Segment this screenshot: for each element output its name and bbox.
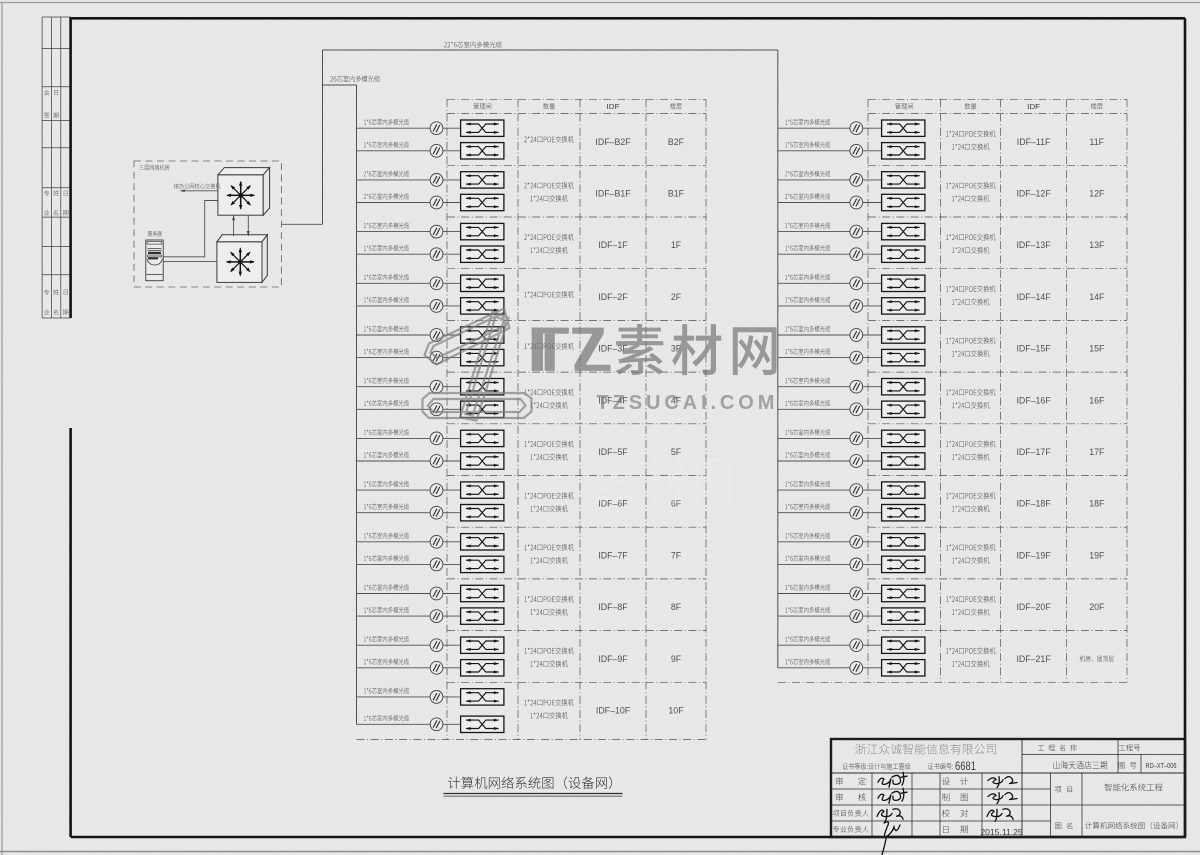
svg-text:IDF–8F: IDF–8F	[598, 602, 628, 612]
svg-text:IDF–10F: IDF–10F	[596, 706, 631, 716]
svg-text:2015.11.25: 2015.11.25	[980, 827, 1023, 837]
svg-text:IDF–21F: IDF–21F	[1016, 654, 1051, 664]
svg-text:14F: 14F	[1089, 292, 1105, 302]
svg-text:IDF–7F: IDF–7F	[598, 550, 628, 560]
svg-text:IDF: IDF	[607, 102, 620, 111]
svg-text:12F: 12F	[1089, 189, 1105, 199]
svg-text:IDF–B1F: IDF–B1F	[595, 189, 631, 199]
svg-text:2F: 2F	[671, 292, 682, 302]
svg-text:IDF–13F: IDF–13F	[1016, 240, 1051, 250]
svg-text:13F: 13F	[1089, 240, 1105, 250]
svg-text:6681: 6681	[955, 759, 976, 773]
svg-text:IDF–15F: IDF–15F	[1016, 344, 1051, 354]
svg-text:IDF–9F: IDF–9F	[598, 654, 628, 664]
svg-text:RD–XT–006: RD–XT–006	[1146, 763, 1177, 770]
svg-text:1F: 1F	[671, 240, 682, 250]
svg-text:IDF–12F: IDF–12F	[1016, 189, 1051, 199]
svg-text:11F: 11F	[1090, 137, 1105, 147]
svg-text:IDF–18F: IDF–18F	[1016, 499, 1051, 509]
svg-text:17F: 17F	[1089, 447, 1105, 457]
svg-text:IDF–19F: IDF–19F	[1016, 550, 1051, 560]
svg-text:9F: 9F	[671, 654, 682, 664]
svg-text:10F: 10F	[668, 706, 684, 716]
svg-text:IDF–14F: IDF–14F	[1016, 292, 1051, 302]
svg-text:IDF–20F: IDF–20F	[1016, 602, 1051, 612]
svg-text:IDF: IDF	[1027, 102, 1040, 111]
svg-text:18F: 18F	[1089, 499, 1105, 509]
svg-text:B1F: B1F	[668, 189, 685, 199]
svg-text:IDF–B2F: IDF–B2F	[595, 137, 631, 147]
svg-text:IDF–16F: IDF–16F	[1016, 395, 1051, 405]
svg-text:7F: 7F	[671, 550, 682, 560]
svg-text:IDF–17F: IDF–17F	[1016, 447, 1051, 457]
svg-text:15F: 15F	[1089, 344, 1105, 354]
svg-text:TZSUCAI.COM: TZSUCAI.COM	[597, 392, 779, 414]
svg-text:19F: 19F	[1089, 550, 1105, 560]
svg-text:IDF–2F: IDF–2F	[598, 292, 628, 302]
svg-text:20F: 20F	[1089, 602, 1105, 612]
svg-text:IDF–1F: IDF–1F	[598, 240, 628, 250]
svg-text:IDF–5F: IDF–5F	[598, 447, 628, 457]
svg-text:16F: 16F	[1089, 395, 1105, 405]
svg-text:B2F: B2F	[668, 137, 685, 147]
svg-text:IDF–11F: IDF–11F	[1017, 137, 1051, 147]
svg-text:8F: 8F	[671, 602, 682, 612]
